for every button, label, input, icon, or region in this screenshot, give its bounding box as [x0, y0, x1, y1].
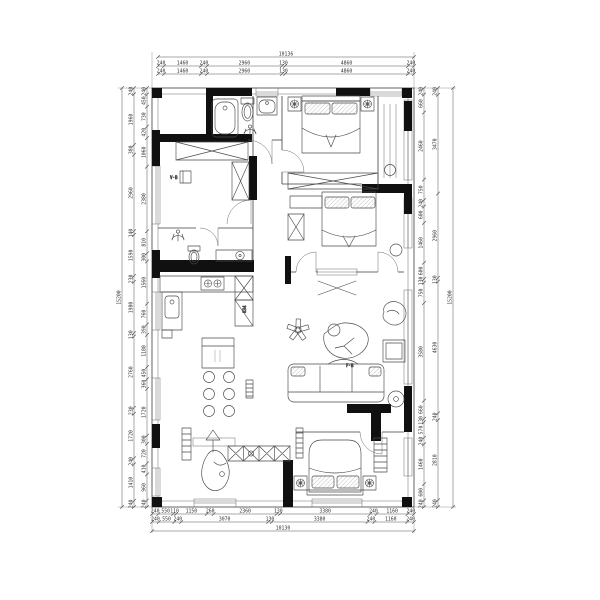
dim-label: 2960 [239, 69, 251, 75]
dim-label: 240 [419, 199, 425, 208]
dim-label: 660 [419, 99, 425, 108]
dim-label: 130 [279, 61, 288, 67]
dim-bottom-row2: 240550240307013033802401160240 [150, 517, 416, 524]
dim-top-row1: 240146024029601304860240 [156, 61, 416, 68]
dim-label: 240 [419, 499, 425, 508]
dim-label: 3470 [433, 138, 439, 150]
dim-label: 1460 [419, 237, 425, 249]
dim-label: 110 [170, 509, 179, 515]
dim-label: 1460 [419, 458, 425, 470]
dim-label: 2460 [419, 140, 425, 152]
dim-label: 2960 [433, 230, 439, 242]
dim-label: 1560 [142, 277, 148, 289]
dim-label: 15200 [117, 290, 123, 305]
dim-label: 300 [142, 435, 148, 444]
dim-label: 550 [161, 509, 170, 515]
dim-label: 240 [419, 437, 425, 446]
dim-label: 1980 [129, 302, 135, 314]
dim-right-outer: 2403470296013046302402810240 [433, 86, 440, 509]
dim-left-total: 15200 [117, 86, 124, 509]
dim-label: 130 [419, 276, 425, 285]
dim-left-inner: 2404507304201060238081030015607603901180… [142, 86, 149, 509]
dim-label: 1410 [129, 477, 135, 489]
dim-label: 130 [274, 509, 283, 515]
dim-label: 140 [129, 229, 135, 238]
dim-right-inner: 2406602460750240600146060013075035806601… [419, 86, 426, 509]
dim-label: 1460 [177, 69, 189, 75]
dim-label: 240 [142, 87, 148, 96]
dim-label: 130 [266, 517, 275, 523]
living-furniture: F·B [287, 281, 406, 407]
floor-plan-canvas: V·B 834 [0, 0, 600, 600]
bedroom1-furniture: V·B [170, 142, 249, 200]
dim-label: 570 [419, 426, 425, 435]
dim-top-row2: 240146024029601304860240 [156, 69, 416, 76]
dim-label: 600 [419, 266, 425, 275]
dim-label: 10130 [276, 526, 291, 532]
dim-label: 750 [419, 288, 425, 297]
dim-label: 450 [142, 369, 148, 378]
kitchen-fixtures: 834 [160, 276, 253, 338]
bathroom2-fixtures [172, 230, 252, 264]
dim-label: 1720 [129, 430, 135, 442]
dim-label: 2360 [239, 509, 251, 515]
dim-label: 240 [433, 412, 439, 421]
dim-label: 360 [142, 380, 148, 389]
dim-bottom-row1: 2405501101150260236013033802401160240 [150, 509, 416, 516]
dim-label: 550 [162, 517, 171, 523]
dim-label: 130 [129, 330, 135, 339]
bedroom3-furniture [294, 438, 387, 495]
dim-label: 1150 [186, 509, 198, 515]
bathroom-fixtures [212, 97, 277, 137]
dim-label: 600 [419, 488, 425, 497]
dim-label: 3580 [419, 346, 425, 358]
dim-label: 240 [151, 517, 160, 523]
dim-label: 1160 [386, 509, 398, 515]
dim-label: 240 [433, 499, 439, 508]
dim-label: 240 [173, 517, 182, 523]
dim-label: 10136 [279, 52, 294, 58]
living-note-label: F·B [346, 363, 354, 368]
dim-label: 1960 [129, 114, 135, 126]
dim-label: 2760 [129, 366, 135, 378]
dim-label: 2380 [142, 193, 148, 205]
bedroom-note-label: V·B [170, 175, 178, 180]
dim-label: 240 [142, 499, 148, 508]
dim-label: 600 [419, 210, 425, 219]
dim-label: 3070 [219, 517, 231, 523]
dim-label: 4860 [341, 61, 353, 67]
dim-label: 380 [129, 145, 135, 154]
dim-label: 390 [142, 325, 148, 334]
balcony [384, 104, 396, 178]
dim-label: 130 [433, 275, 439, 284]
dim-label: 2810 [433, 454, 439, 466]
dim-label: 1460 [177, 61, 189, 67]
dim-label: 750 [419, 185, 425, 194]
dim-label: 450 [142, 96, 148, 105]
dim-label: 2960 [129, 187, 135, 199]
dim-right-total: 15200 [448, 86, 455, 509]
dim-label: 240 [406, 517, 415, 523]
dim-label: 240 [367, 517, 376, 523]
dim-label: 2960 [239, 61, 251, 67]
dim-top-total: 10136 [156, 52, 416, 59]
dim-label: 420 [142, 128, 148, 137]
dim-bottom-total: 10130 [150, 526, 416, 533]
dim-label: 3380 [319, 509, 331, 515]
dim-label: 810 [142, 238, 148, 247]
dim-label: 760 [142, 310, 148, 319]
dim-label: 410 [142, 464, 148, 473]
dim-label: 130 [419, 416, 425, 425]
dim-left-outer: 2401960380296014015902301980130276023017… [129, 86, 136, 509]
dim-label: 15200 [448, 290, 454, 305]
dim-label: 3380 [314, 517, 326, 523]
dim-label: 260 [206, 509, 215, 515]
dim-label: 1590 [129, 249, 135, 261]
dim-label: 660 [419, 405, 425, 414]
dim-label: 300 [142, 253, 148, 262]
dim-label: 1180 [142, 345, 148, 357]
dim-label: 720 [142, 449, 148, 458]
dim-label: 240 [419, 87, 425, 96]
dim-label: 4630 [433, 342, 439, 354]
dim-label: 1060 [142, 146, 148, 158]
entry-furniture [182, 428, 290, 491]
dim-label: 960 [142, 483, 148, 492]
dim-label: 1160 [385, 517, 397, 523]
dim-label: 730 [142, 112, 148, 121]
dim-label: 1720 [142, 406, 148, 418]
master-bedroom-furniture [288, 96, 374, 153]
cabinet-depth-label: 834 [242, 305, 247, 313]
dim-label: 4860 [341, 69, 353, 75]
dim-label: 240 [433, 87, 439, 96]
dim-label: 130 [279, 69, 288, 75]
